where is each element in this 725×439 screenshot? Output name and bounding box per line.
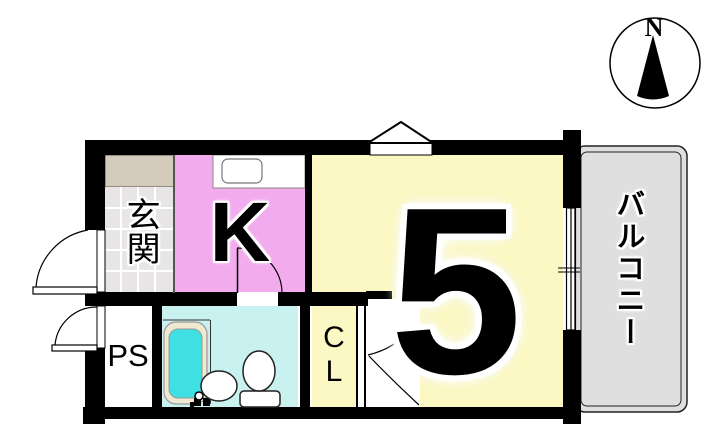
top-window bbox=[368, 122, 433, 155]
entrance-label: 玄関 bbox=[121, 197, 159, 265]
vent-triangle bbox=[368, 122, 433, 143]
entrance-cabinet bbox=[105, 155, 175, 187]
kitchen-sink bbox=[222, 159, 262, 183]
kitchen-label: K bbox=[204, 190, 276, 274]
cl-label: CL bbox=[312, 321, 356, 389]
ps-label: PS bbox=[102, 338, 154, 374]
balcony-label: バルコニー bbox=[611, 189, 643, 349]
cl-label-line1: C bbox=[323, 321, 345, 354]
kitchen-entrance-divider bbox=[173, 155, 175, 293]
ps-door-arc bbox=[55, 307, 97, 345]
washbasin bbox=[201, 371, 237, 401]
ps-door bbox=[52, 306, 105, 351]
kitchen-counter bbox=[213, 155, 305, 188]
cl-label-line2: L bbox=[326, 355, 343, 388]
main-room-label: 5 bbox=[356, 173, 556, 411]
compass-north-label: N bbox=[639, 13, 669, 43]
floor-plan: 玄関 K 5 バルコニー PS CL N bbox=[0, 0, 725, 439]
entrance-door-arc bbox=[36, 230, 88, 287]
entrance-door bbox=[33, 230, 105, 294]
